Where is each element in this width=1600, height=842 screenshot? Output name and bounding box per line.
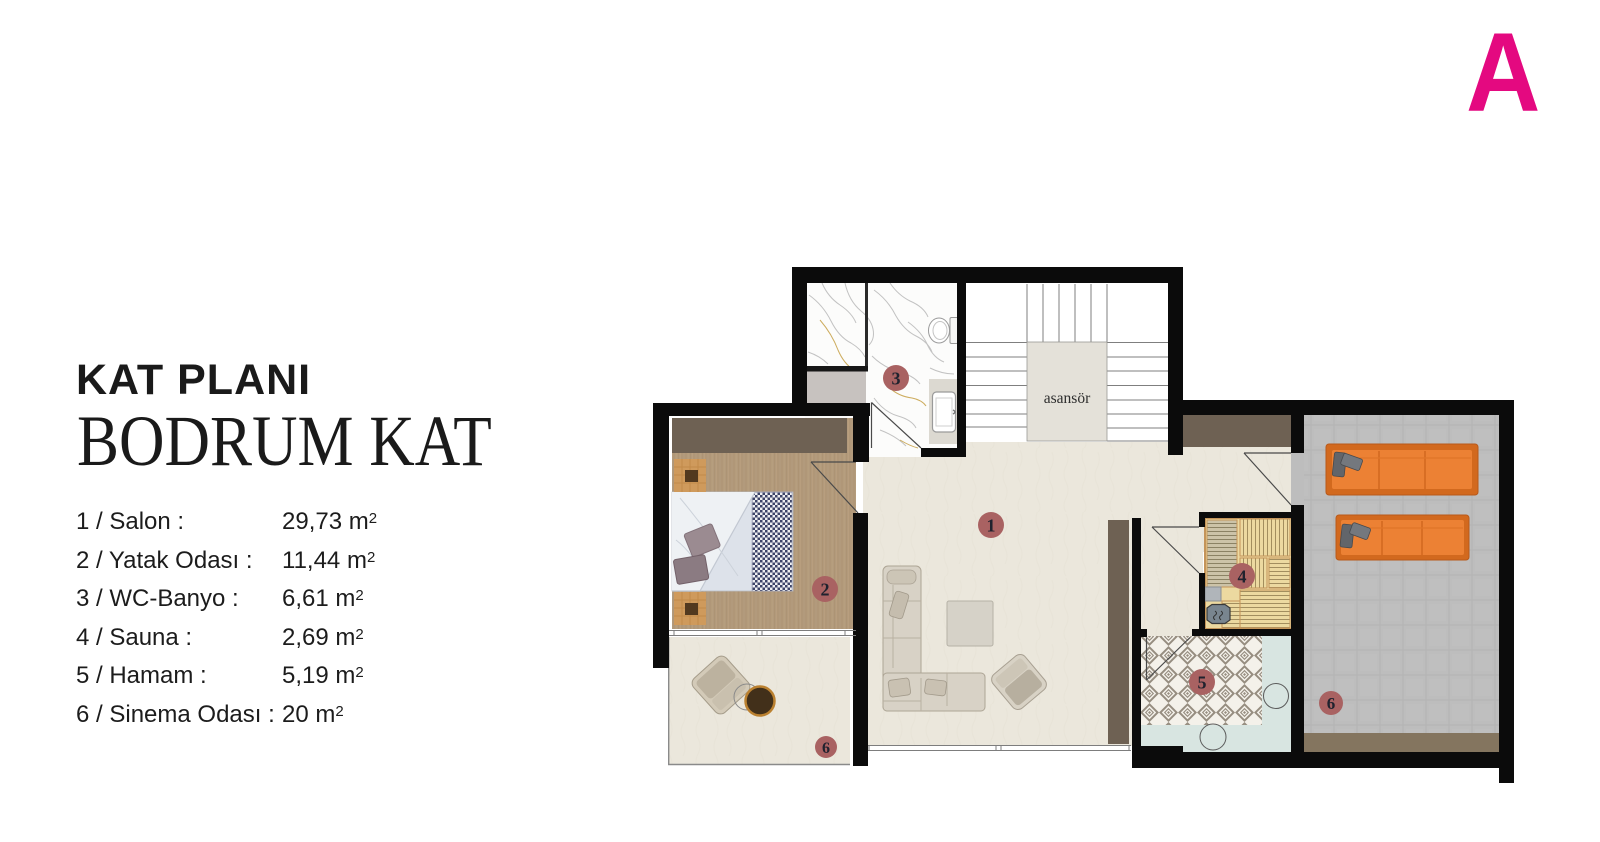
svg-text:2: 2 — [821, 580, 830, 600]
svg-text:1: 1 — [987, 516, 996, 536]
svg-text:4: 4 — [1238, 567, 1247, 587]
svg-text:asansör: asansör — [1044, 390, 1091, 407]
svg-text:6: 6 — [1327, 694, 1336, 713]
svg-text:5: 5 — [1198, 673, 1207, 693]
svg-text:6: 6 — [822, 740, 830, 757]
svg-text:3: 3 — [892, 369, 901, 389]
